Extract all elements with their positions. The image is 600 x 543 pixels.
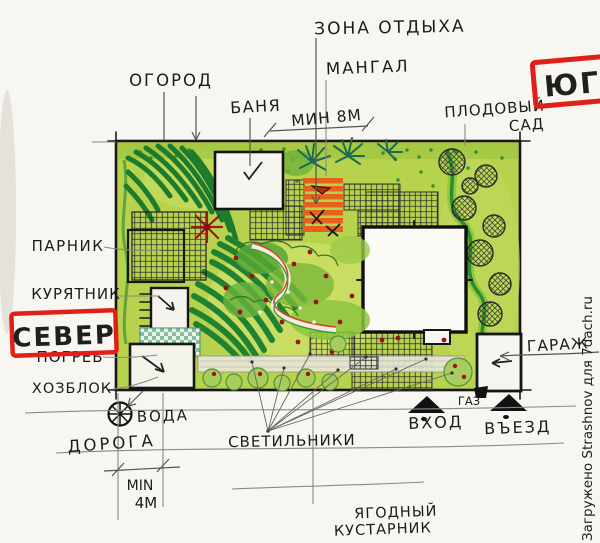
label-gaz: ГАЗ	[458, 394, 480, 408]
label-kuryatnik: КУРЯТНИК	[31, 285, 121, 303]
label-ogorod: ОГОРОД	[129, 71, 213, 90]
label-hozblok: ХОЗБЛОК	[32, 381, 112, 397]
label-vyezd: ВЪЕЗД	[484, 417, 552, 438]
garden-plan-sketch: ЗОНА ОТДЫХА МАНГАЛ ОГОРОД БАНЯ МИН 8М ПЛ…	[0, 0, 600, 543]
garden-path-strip	[198, 356, 464, 372]
label-vhod: ВХОД	[408, 412, 464, 433]
label-mangal: МАНГАЛ	[326, 57, 410, 79]
label-svetilniki: СВЕТИЛЬНИКИ	[228, 431, 356, 451]
north-stamp-text: СЕВЕР	[12, 320, 116, 354]
label-banya: БАНЯ	[230, 96, 282, 118]
label-min-4m-1: MIN	[127, 478, 154, 494]
label-parnik: ПАРНИК	[32, 237, 105, 255]
south-stamp-text: ЮГ	[543, 65, 600, 104]
bbq-zone	[303, 178, 343, 236]
label-min-4m-2: 4М	[135, 494, 158, 512]
garage-building	[477, 334, 521, 391]
plan-canvas: ЗОНА ОТДЫХА МАНГАЛ ОГОРОД БАНЯ МИН 8М ПЛ…	[0, 0, 600, 543]
house	[357, 221, 472, 344]
label-berry-2: КУСТАРНИК	[334, 520, 432, 539]
porch	[424, 330, 450, 344]
label-voda: ВОДА	[136, 406, 189, 426]
label-zone-rest: ЗОНА ОТДЫХА	[314, 17, 466, 40]
cellar-building	[130, 344, 194, 388]
bathhouse	[215, 152, 283, 209]
watermark: Загружено Strashnov для 7dach.ru	[580, 296, 596, 541]
label-fruit-garden-2: САД	[508, 115, 545, 135]
